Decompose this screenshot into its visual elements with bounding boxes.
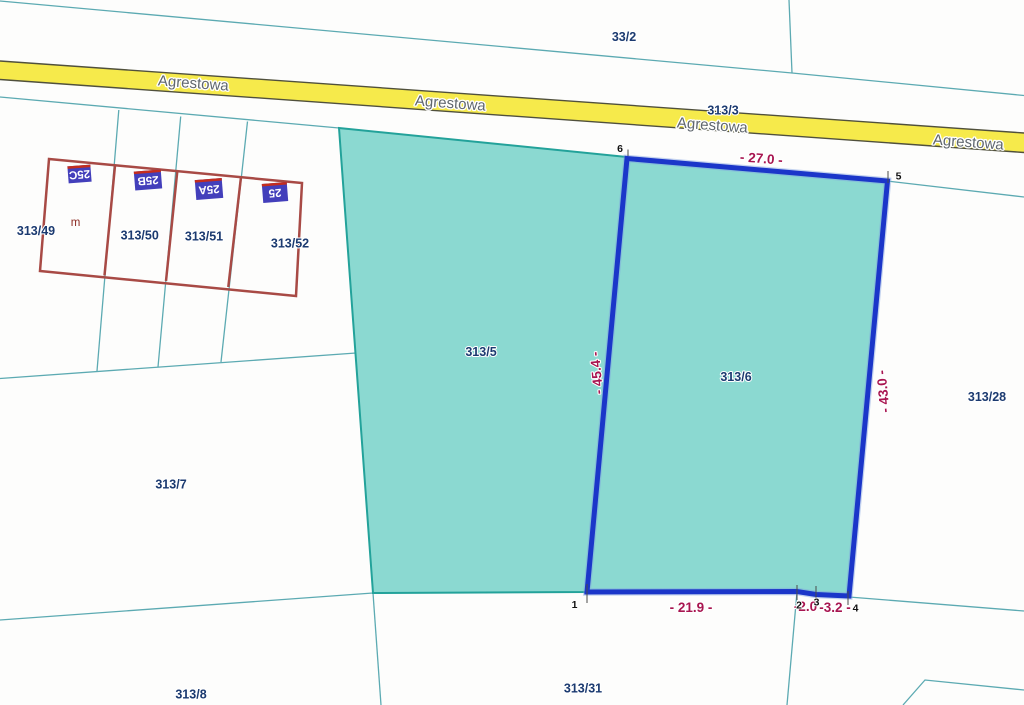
svg-text:1: 1	[572, 599, 578, 611]
svg-text:6: 6	[617, 143, 623, 155]
svg-text:-3.2 -: -3.2 -	[819, 600, 851, 615]
svg-text:313/50: 313/50	[121, 229, 159, 243]
svg-text:- 21.9 -: - 21.9 -	[670, 600, 713, 615]
svg-text:4: 4	[853, 603, 859, 615]
svg-text:313/5: 313/5	[465, 345, 496, 359]
svg-text:m: m	[71, 217, 81, 229]
svg-text:25C: 25C	[68, 167, 90, 181]
svg-text:313/51: 313/51	[185, 230, 223, 244]
svg-text:25B: 25B	[137, 173, 159, 187]
svg-text:313/7: 313/7	[155, 478, 186, 492]
svg-text:2: 2	[796, 600, 802, 612]
svg-text:313/52: 313/52	[271, 237, 309, 251]
svg-text:25A: 25A	[198, 182, 220, 196]
svg-text:3: 3	[814, 597, 820, 609]
svg-text:313/28: 313/28	[968, 390, 1006, 404]
svg-text:25: 25	[268, 186, 282, 199]
svg-text:313/31: 313/31	[564, 682, 602, 696]
svg-text:5: 5	[896, 171, 902, 183]
svg-text:313/3: 313/3	[707, 104, 738, 118]
svg-text:313/6: 313/6	[720, 370, 751, 384]
svg-text:313/49: 313/49	[17, 224, 55, 238]
svg-text:33/2: 33/2	[612, 30, 636, 44]
svg-text:313/8: 313/8	[175, 688, 206, 702]
